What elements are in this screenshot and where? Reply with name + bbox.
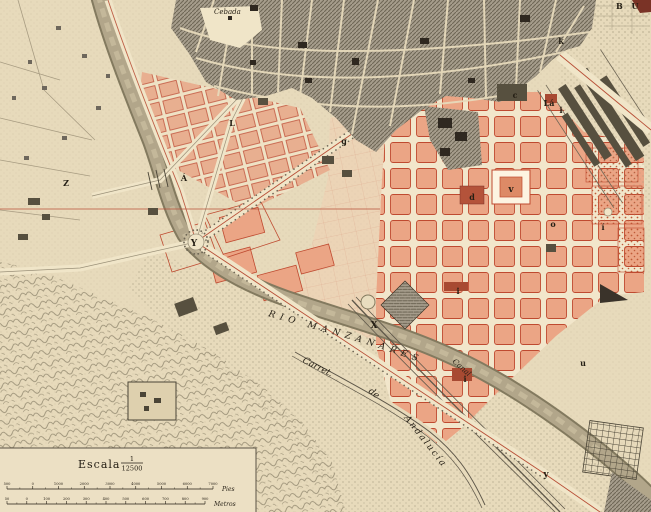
scale-tick-label: 700 [162, 497, 170, 501]
reference-letter-o: o [550, 219, 556, 229]
scale-tick-label: 600 [142, 497, 150, 501]
reference-letter-Y: Y [190, 239, 198, 249]
scale-tick-label: 800 [182, 497, 190, 501]
scale-tick-label: 400 [103, 497, 111, 501]
scale-tick-label: 4000 [131, 482, 141, 486]
partial-label-top-right: B U [616, 1, 642, 11]
scale-tick-label: 6000 [183, 482, 193, 486]
reference-letter-Z: Z [63, 178, 69, 188]
cebada-label: Cebada [214, 8, 241, 16]
reference-letter-k: k [558, 36, 564, 46]
scale-fraction-denominator: 12500 [122, 465, 143, 473]
reference-letter-i: i [456, 286, 459, 296]
pies-unit-label: Pies [221, 486, 235, 493]
walled-enclosure [128, 382, 176, 420]
scale-tick-label: 200 [63, 497, 71, 501]
reference-letter-X: X [371, 321, 378, 331]
scale-tick-label: 100 [43, 497, 51, 501]
reference-letter-c: c [513, 90, 518, 100]
scale-tick-label: 500 [122, 497, 130, 501]
reference-letter-L: L [229, 118, 235, 128]
reference-letter-u: u [580, 358, 586, 368]
reference-letter-í: í [601, 222, 604, 232]
escala-label: Escala [78, 458, 120, 471]
scale-tick-label: 5000 [157, 482, 167, 486]
reference-letter-Á: Á [180, 173, 188, 183]
reference-letter-y: y [542, 470, 549, 480]
scale-tick-label: 2000 [80, 482, 90, 486]
reference-letter-i: i [559, 105, 562, 115]
scale-tick-label: 50 [5, 497, 10, 501]
scale-tick-label: 300 [83, 497, 91, 501]
metros-unit-label: Metros [213, 501, 236, 508]
historic-map-canvas: Cebada B U RIO MANZANARES Canal Carret. … [0, 0, 651, 512]
scale-tick-label: 500 [4, 482, 12, 486]
reference-letter-d: d [469, 192, 475, 202]
huerta-grid-square [583, 420, 644, 479]
scale-tick-label: 1000 [54, 482, 64, 486]
canal-head-pond [361, 295, 375, 309]
scale-tick-label: 3000 [105, 482, 115, 486]
reference-letter-g: g [341, 136, 347, 146]
scale-tick-label: 7000 [208, 482, 218, 486]
scale-tick-label: 900 [202, 497, 210, 501]
scale-box: Escala 1 12500 5000100020003000400050006… [0, 448, 256, 512]
reference-letter-i: i [463, 374, 466, 384]
small-roundabout [604, 208, 612, 216]
scale-fraction-numerator: 1 [130, 455, 134, 463]
reference-letter-Lá: Lá [544, 98, 555, 108]
reference-letter-v: v [507, 185, 514, 195]
